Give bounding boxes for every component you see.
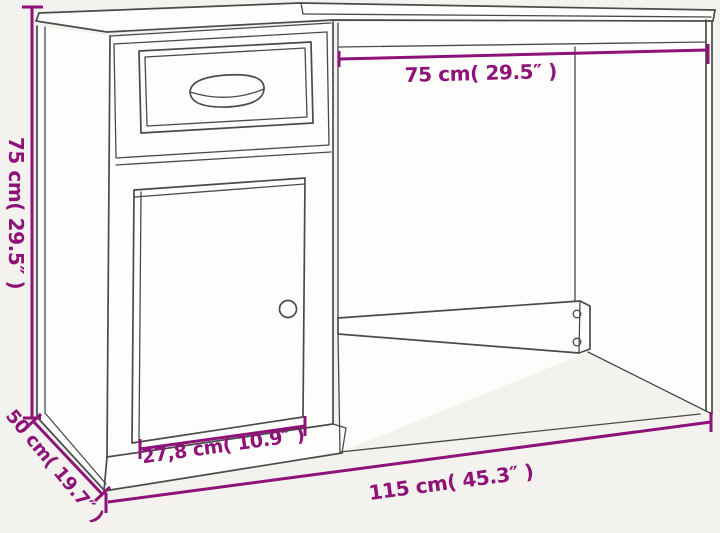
desk-diagram-canvas: 75 cm( 29.5″ ) 75 cm( 29.5″ ) 50 cm( 19.… <box>0 0 720 533</box>
desk-faces <box>36 3 715 491</box>
left-side-panel-face <box>37 26 110 490</box>
dimension-diagram: 75 cm( 29.5″ ) 75 cm( 29.5″ ) 50 cm( 19.… <box>0 0 720 533</box>
knee-space-face <box>338 22 712 452</box>
overall-width-dimension-label: 115 cm( 45.3″ ) <box>367 459 535 505</box>
height-dimension-label: 75 cm( 29.5″ ) <box>4 137 28 289</box>
desktop-width-dimension-label: 75 cm( 29.5″ ) <box>404 59 557 87</box>
